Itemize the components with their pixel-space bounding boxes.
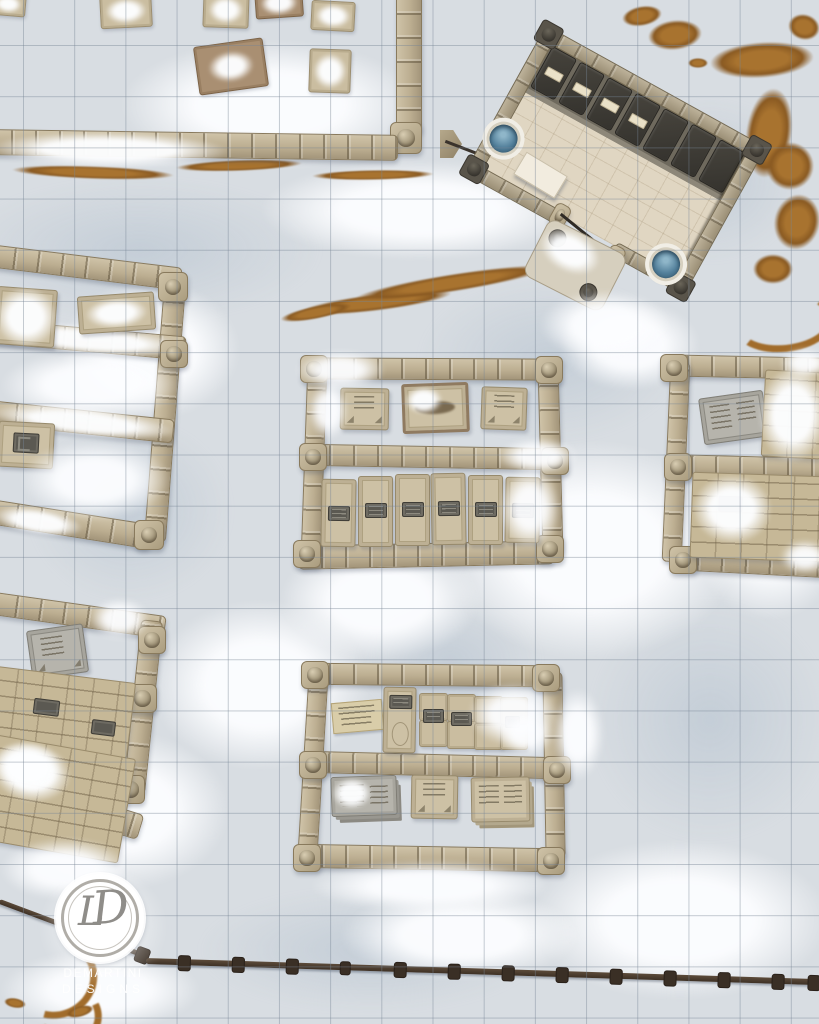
grave-plaque bbox=[475, 502, 497, 517]
north-pen-wall-horizontal bbox=[0, 129, 398, 161]
stall-bed bbox=[628, 113, 648, 130]
marker-slab bbox=[480, 386, 527, 431]
grave-plaque bbox=[365, 503, 387, 518]
wall-post bbox=[664, 453, 692, 481]
snow-drift bbox=[0, 0, 23, 14]
crate bbox=[474, 696, 503, 725]
inscription bbox=[423, 783, 445, 799]
inscription bbox=[369, 506, 383, 515]
snow-drift bbox=[259, 0, 299, 16]
inscription bbox=[427, 712, 440, 720]
crate-plaque bbox=[451, 712, 472, 726]
slab-plaque bbox=[389, 695, 412, 709]
crate bbox=[419, 720, 448, 747]
wall-post bbox=[536, 535, 564, 563]
corner-mark bbox=[347, 416, 354, 423]
tablet-stack bbox=[471, 776, 531, 822]
standing-slab bbox=[382, 687, 416, 754]
north-pen-wall-vertical bbox=[396, 0, 422, 134]
wall-post bbox=[160, 340, 188, 368]
wall-post bbox=[541, 447, 569, 475]
wall-post bbox=[299, 751, 327, 779]
watermark-logo: L D DEMARTINI DESIGNS bbox=[40, 866, 180, 1022]
inscription bbox=[340, 784, 365, 807]
crate bbox=[0, 0, 27, 18]
crate bbox=[202, 0, 249, 29]
wall-post bbox=[535, 356, 563, 384]
tablet bbox=[411, 775, 459, 820]
platform-plaque bbox=[91, 719, 117, 737]
grave-slab bbox=[358, 476, 393, 547]
wall-post bbox=[543, 756, 571, 784]
crate bbox=[254, 0, 304, 20]
paper-sign bbox=[331, 699, 385, 734]
marker-slab bbox=[340, 388, 390, 431]
inscription bbox=[455, 715, 468, 723]
inscription bbox=[736, 400, 757, 422]
inscription bbox=[338, 705, 375, 716]
crate bbox=[193, 37, 269, 95]
crate bbox=[308, 48, 352, 93]
crate bbox=[310, 0, 356, 32]
fence-post bbox=[447, 963, 460, 979]
grave-slab bbox=[401, 382, 470, 434]
inscription bbox=[393, 698, 408, 706]
inscription bbox=[479, 785, 499, 805]
corner-mark bbox=[375, 416, 382, 423]
fence-post bbox=[609, 969, 622, 985]
inscription bbox=[40, 635, 65, 658]
plaque-glyph bbox=[18, 437, 31, 452]
grave-plaque bbox=[438, 501, 460, 516]
tablet-stack bbox=[330, 775, 397, 817]
fence-post bbox=[771, 974, 784, 990]
grave-slab bbox=[77, 291, 156, 334]
watermark-name: DEMARTINI bbox=[46, 966, 160, 980]
marker-slab bbox=[698, 390, 769, 446]
corner-mark bbox=[512, 416, 519, 423]
fence-post bbox=[232, 957, 245, 973]
porch-knob bbox=[545, 226, 569, 250]
wall-post bbox=[532, 664, 560, 692]
fence-rail-south bbox=[146, 958, 819, 985]
snow-drift bbox=[0, 501, 85, 543]
snow-drift bbox=[0, 285, 59, 349]
wall-post bbox=[301, 661, 329, 689]
stall-bed bbox=[572, 82, 592, 99]
snow-drift bbox=[315, 3, 351, 28]
west-pen-wall bbox=[0, 500, 153, 550]
watermark-name: DESIGNS bbox=[46, 982, 160, 996]
grave-plaque bbox=[13, 432, 40, 453]
stall-bed bbox=[544, 66, 564, 83]
grave-slab bbox=[468, 475, 503, 545]
wall-post bbox=[537, 847, 565, 875]
inscription bbox=[406, 505, 420, 514]
wall-post bbox=[660, 354, 688, 382]
wall-post bbox=[138, 626, 166, 654]
center-pen-divider bbox=[306, 444, 558, 470]
fence-post bbox=[555, 967, 568, 983]
inscription bbox=[516, 506, 530, 515]
stall-bed bbox=[600, 97, 620, 114]
grave-slab bbox=[430, 473, 466, 546]
grave-plaque bbox=[402, 502, 424, 517]
inscription bbox=[504, 785, 522, 805]
snow-drift bbox=[313, 53, 348, 89]
fence-post bbox=[286, 958, 299, 974]
grave-slab bbox=[320, 479, 356, 548]
inscription bbox=[354, 396, 374, 412]
logo-monogram-d: D bbox=[90, 883, 130, 931]
corner-mark bbox=[418, 805, 425, 812]
fence-post bbox=[807, 975, 819, 991]
snow-drift bbox=[0, 736, 76, 809]
wall-post bbox=[299, 443, 327, 471]
platform-plaque bbox=[33, 698, 61, 717]
wall-post bbox=[300, 355, 328, 383]
fence-post bbox=[717, 972, 730, 988]
snow-drift bbox=[0, 736, 66, 797]
platform-plaque bbox=[718, 496, 743, 513]
fence-post bbox=[501, 965, 514, 981]
battle-map: L D DEMARTINI DESIGNS bbox=[0, 0, 819, 1024]
inscription bbox=[332, 509, 346, 518]
inscription bbox=[479, 505, 493, 514]
inscription bbox=[709, 403, 732, 432]
grave-plaque bbox=[512, 503, 534, 518]
inscription bbox=[494, 395, 515, 412]
snow-drift bbox=[206, 47, 256, 85]
stone-building bbox=[465, 25, 765, 293]
snow-drift bbox=[84, 296, 149, 331]
wall-post bbox=[158, 272, 188, 302]
grave-slab bbox=[0, 421, 55, 470]
inscription bbox=[442, 504, 456, 513]
crate-plaque bbox=[423, 709, 444, 723]
snow-drift bbox=[756, 364, 819, 465]
fence-post bbox=[663, 970, 676, 986]
grave-slab bbox=[0, 286, 58, 348]
grave-plaque bbox=[328, 506, 350, 521]
grave-slab bbox=[504, 477, 540, 544]
center-pen-wall bbox=[306, 357, 552, 380]
snow-drift bbox=[0, 130, 229, 169]
inscription bbox=[341, 716, 372, 727]
corner-mark bbox=[444, 805, 451, 812]
brick-platform bbox=[761, 369, 819, 459]
south-center-pen-wall bbox=[298, 844, 552, 872]
slab-oval bbox=[392, 722, 409, 746]
inscription bbox=[370, 785, 389, 804]
south-center-pen-wall bbox=[306, 663, 546, 688]
porch-knob bbox=[576, 280, 600, 304]
crate bbox=[99, 0, 153, 29]
wall-post bbox=[293, 540, 321, 568]
corner-mark bbox=[488, 415, 495, 422]
fence-post bbox=[340, 961, 351, 975]
brick-platform bbox=[690, 472, 819, 563]
snow-drift bbox=[207, 0, 245, 25]
snow-drift bbox=[104, 0, 147, 26]
grave-slab bbox=[395, 474, 430, 546]
west-pen-wall bbox=[0, 244, 183, 290]
crate bbox=[474, 723, 503, 750]
fence-post bbox=[394, 962, 407, 978]
grave-mound bbox=[415, 400, 455, 414]
crate-plaque bbox=[505, 716, 520, 728]
wall-post bbox=[134, 520, 164, 550]
wall-post bbox=[293, 844, 321, 872]
corner-mark bbox=[73, 659, 81, 667]
